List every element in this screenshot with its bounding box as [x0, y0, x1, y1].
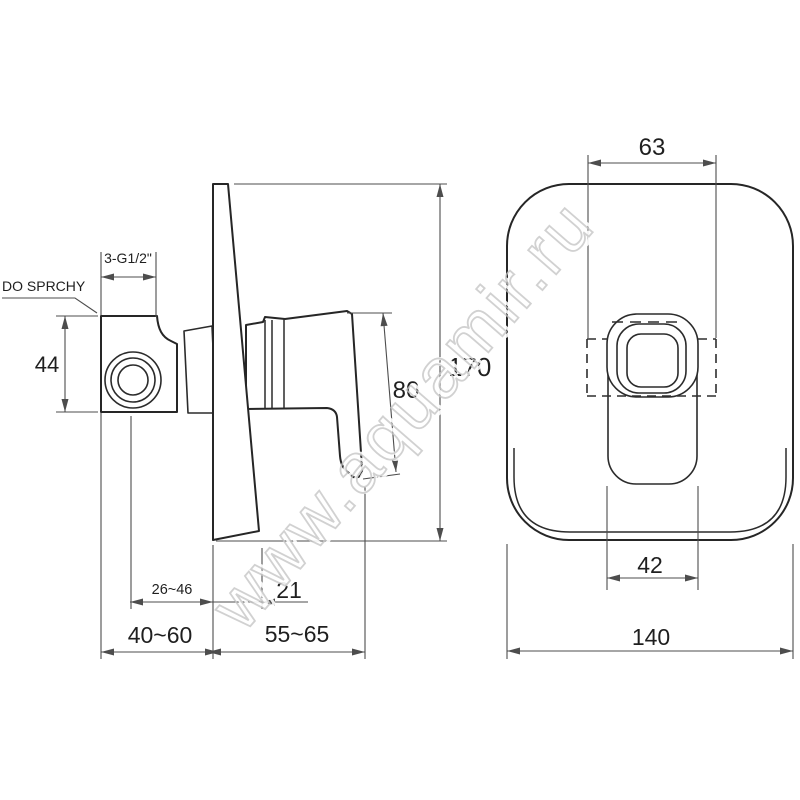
technical-drawing-canvas: DO SPRCHY 3-G1/2" 44 170 80 26~46 21 40~… — [0, 0, 800, 800]
outlet-port-inner-circle — [118, 365, 148, 395]
thread-size-label: 3-G1/2" — [104, 250, 152, 266]
drawing-svg: DO SPRCHY 3-G1/2" 44 170 80 26~46 21 40~… — [0, 0, 800, 800]
dimension-42-label: 42 — [637, 552, 663, 578]
outlet-label: DO SPRCHY — [2, 278, 86, 294]
dimension-63-label: 63 — [639, 134, 666, 161]
cartridge-sleeve-outline — [184, 326, 216, 413]
dimension-40-60-label: 40~60 — [128, 622, 193, 648]
rosette-opening-outline — [627, 334, 678, 387]
dimension-44-label: 44 — [35, 352, 59, 377]
dimension-26-46-label: 26~46 — [152, 582, 193, 598]
dimension-140-label: 140 — [632, 624, 670, 650]
